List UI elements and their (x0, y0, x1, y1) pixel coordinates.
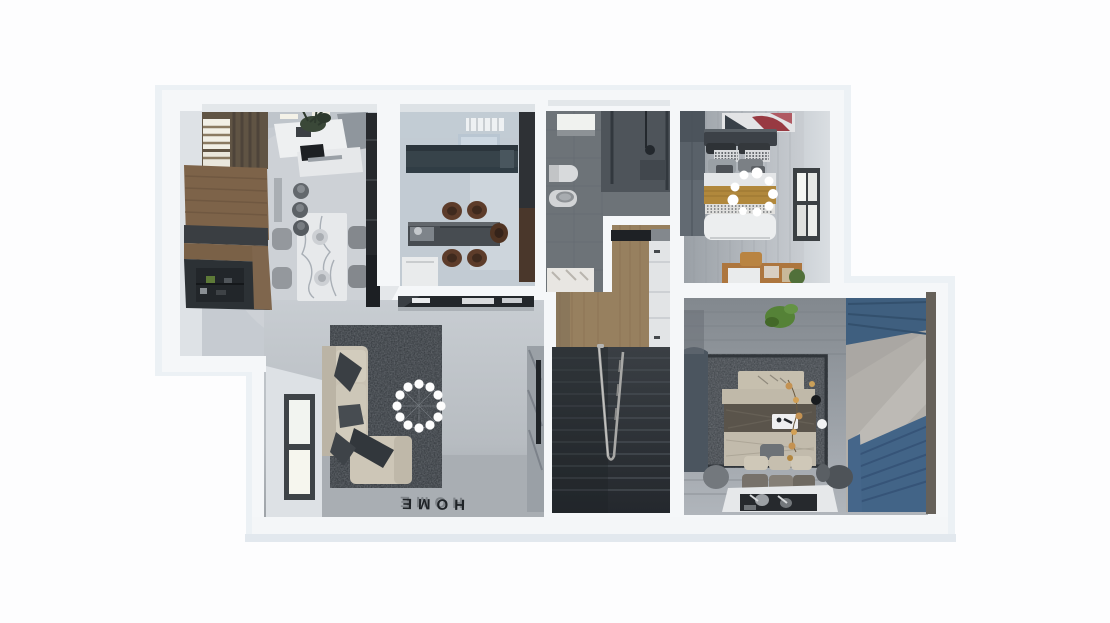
svg-text:HOME: HOME (396, 495, 465, 513)
